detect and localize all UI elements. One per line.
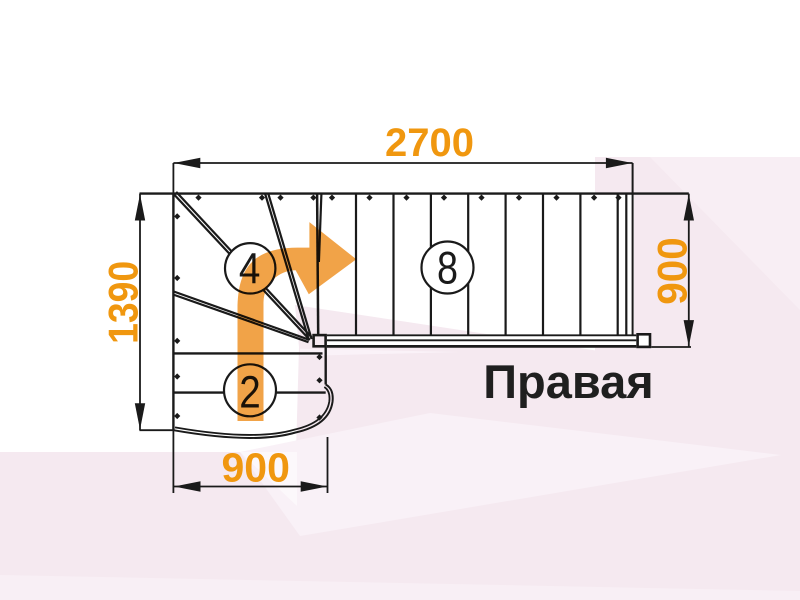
svg-text:900: 900 — [649, 237, 696, 304]
svg-text:2700: 2700 — [385, 121, 474, 165]
svg-text:1390: 1390 — [99, 261, 146, 344]
svg-text:8: 8 — [437, 243, 458, 294]
svg-text:900: 900 — [221, 444, 289, 490]
svg-text:Правая: Правая — [483, 355, 653, 408]
